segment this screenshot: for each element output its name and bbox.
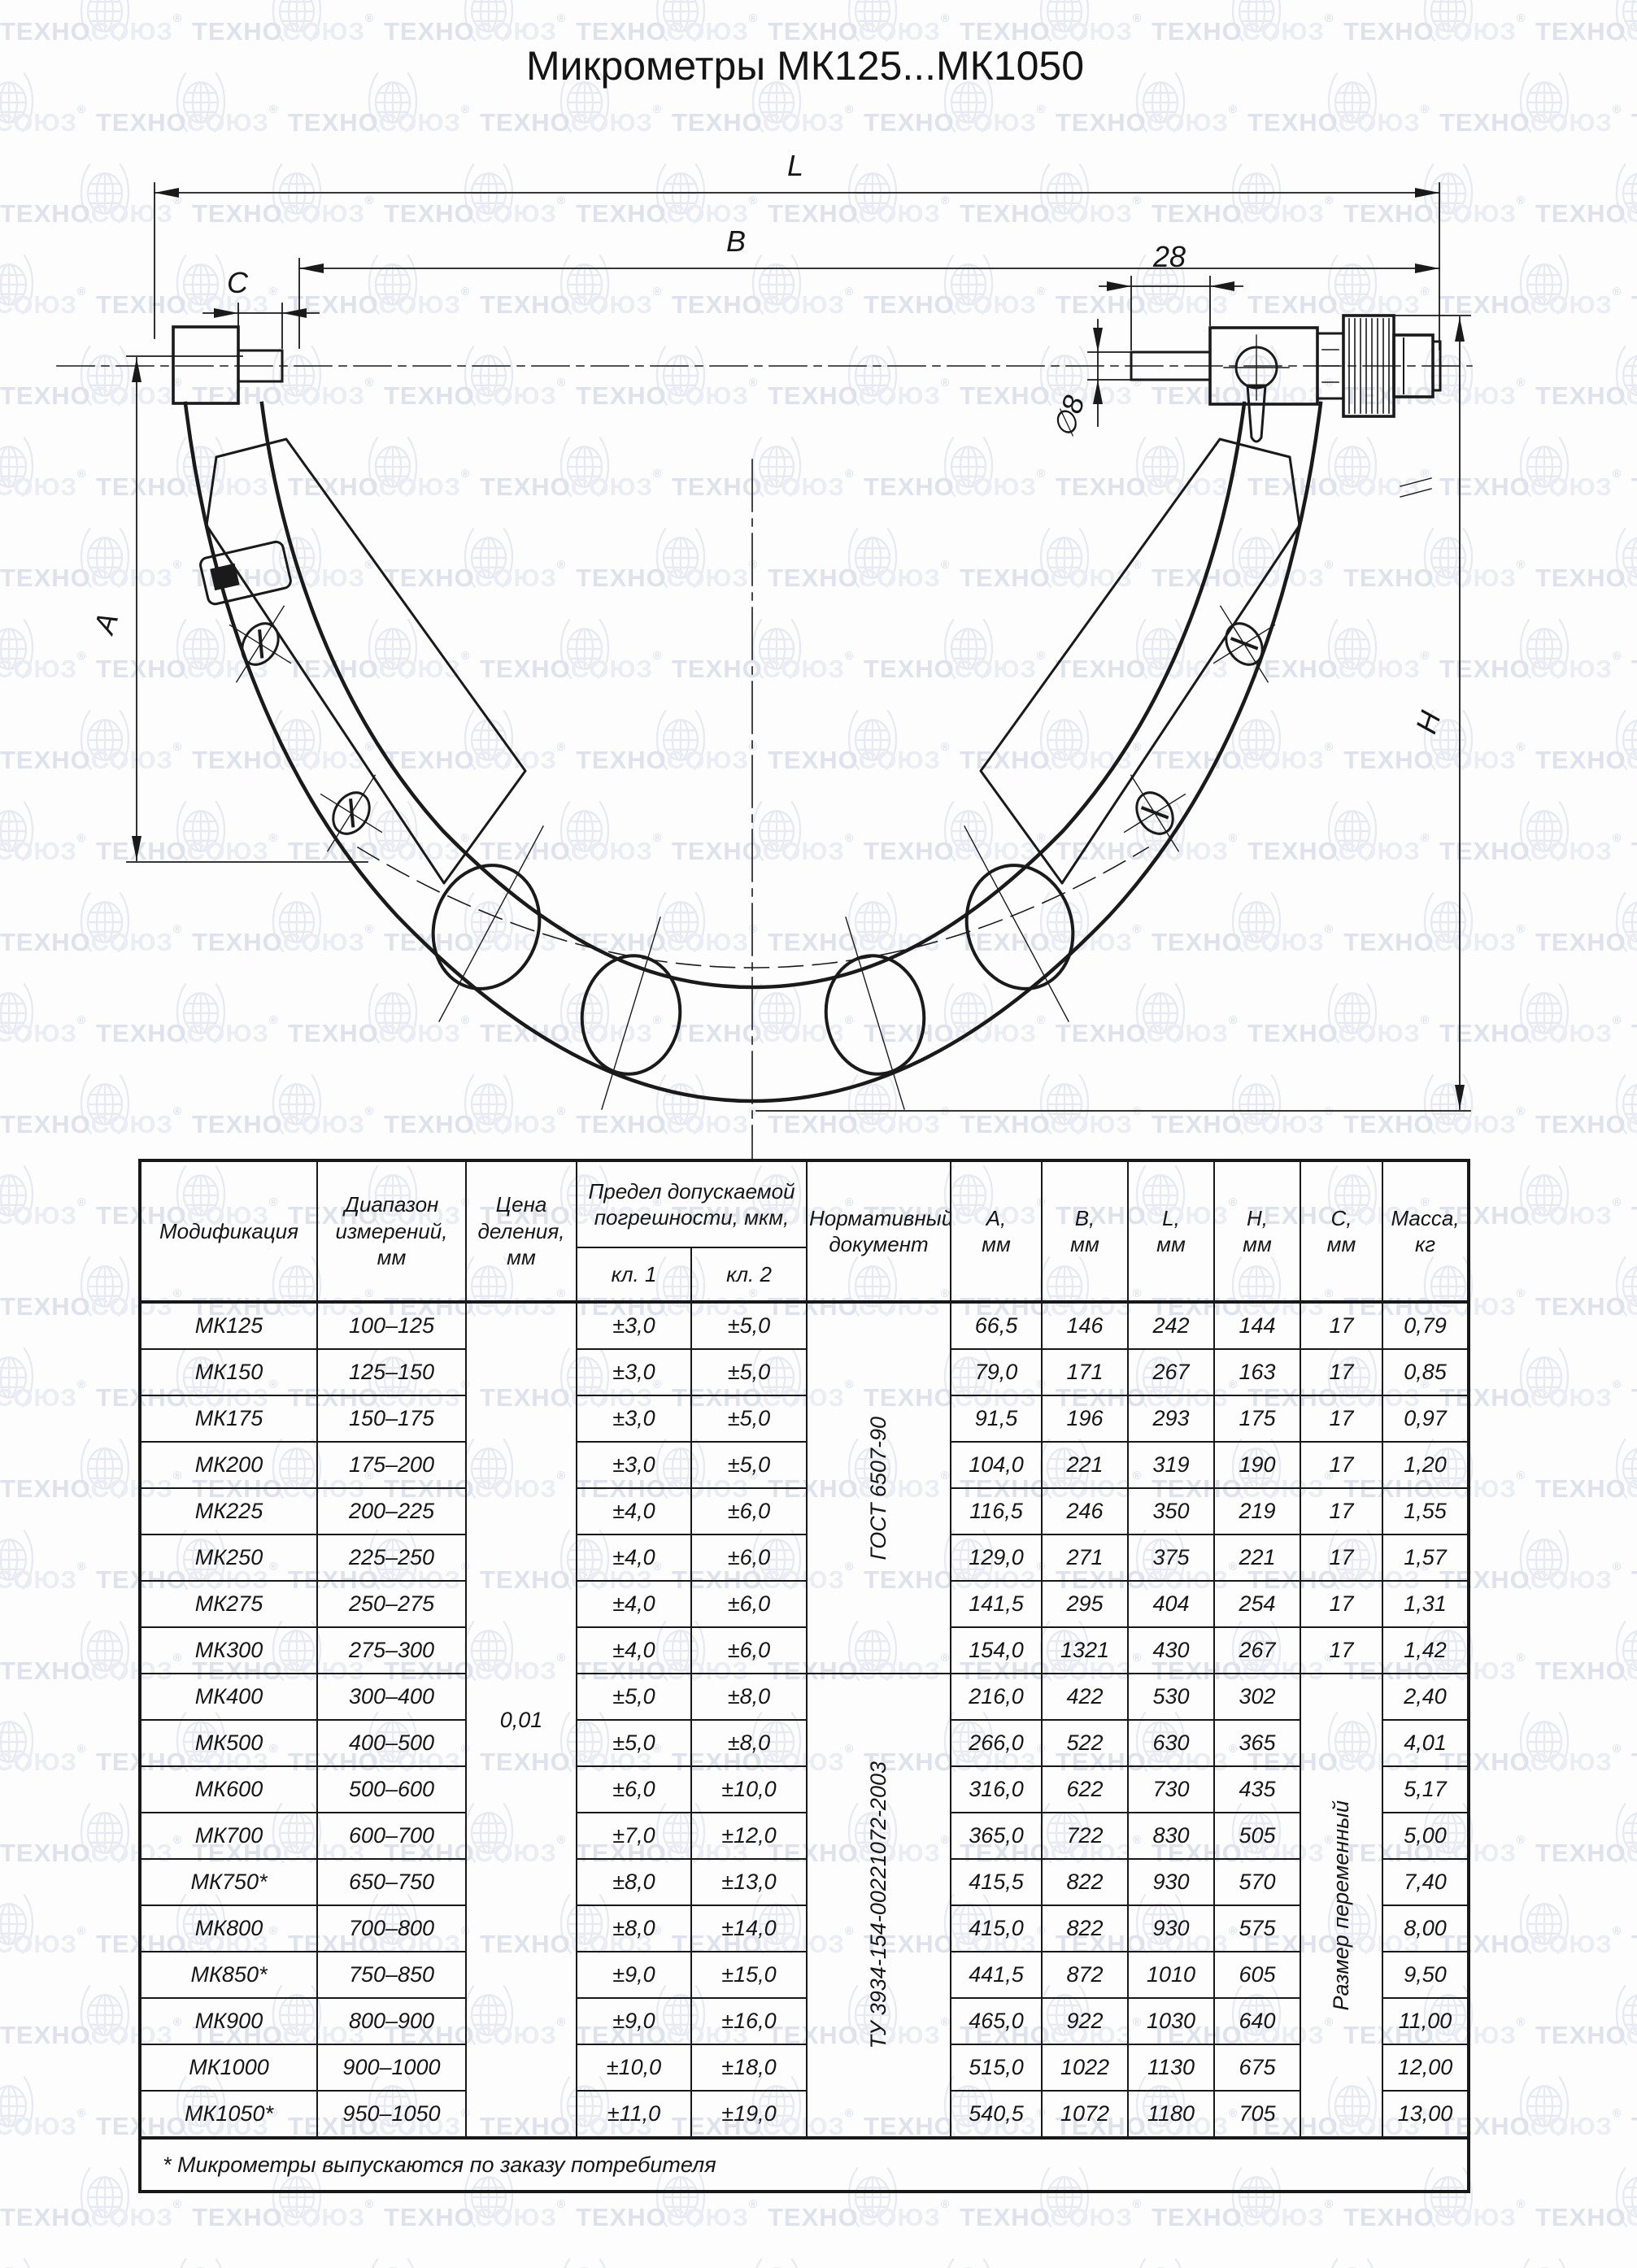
cell-mass: 11,00 — [1382, 1998, 1469, 2044]
cell-dim-a: 365,0 — [951, 1813, 1042, 1859]
cell-error-class2: ±10,0 — [691, 1766, 807, 1813]
col-letter-B: B, — [1075, 1206, 1095, 1230]
cell-dim-h: 221 — [1214, 1534, 1300, 1581]
cell-error-class2: ±12,0 — [691, 1813, 807, 1859]
cell-dim-b: 196 — [1042, 1395, 1128, 1442]
cell-dim-c: 17 — [1300, 1442, 1382, 1488]
cell-error-class2: ±6,0 — [691, 1488, 807, 1534]
col-header-modification: Модификация — [140, 1160, 317, 1302]
cell-range: 250–275 — [317, 1581, 466, 1627]
cell-mass: 1,42 — [1382, 1627, 1469, 1674]
cell-dim-b: 722 — [1042, 1813, 1128, 1859]
cell-error-class2: ±5,0 — [691, 1349, 807, 1395]
dim-label-L: L — [787, 149, 803, 182]
cell-dim-c: 17 — [1300, 1302, 1382, 1349]
cell-dim-l: 630 — [1128, 1720, 1214, 1766]
cell-dim-h: 190 — [1214, 1442, 1300, 1488]
cell-dim-h: 267 — [1214, 1627, 1300, 1674]
cell-dim-a: 540,5 — [951, 2091, 1042, 2138]
cell-model: МК275 — [140, 1581, 317, 1627]
cell-mass: 1,20 — [1382, 1442, 1469, 1488]
cell-dim-l: 404 — [1128, 1581, 1214, 1627]
table-row: МК500400–500±5,0±8,0266,05226303654,01 — [140, 1720, 1469, 1766]
cell-dim-h: 640 — [1214, 1998, 1300, 2044]
table-row: МК250225–250±4,0±6,0129,0271375221171,57 — [140, 1534, 1469, 1581]
anvil — [173, 327, 282, 403]
col-header-A: A, мм — [951, 1160, 1042, 1302]
cell-error-class2: ±6,0 — [691, 1627, 807, 1674]
cell-model: МК200 — [140, 1442, 317, 1488]
cell-dim-h: 570 — [1214, 1859, 1300, 1905]
cell-document-tu-text: ТУ 3934-154-00221072-2003 — [866, 1761, 891, 2049]
col-header-class1: кл. 1 — [577, 1247, 691, 1302]
cell-mass: 0,97 — [1382, 1395, 1469, 1442]
cell-dim-l: 1130 — [1128, 2044, 1214, 2091]
col-unit-L: мм — [1130, 1231, 1212, 1258]
col-header-mass: Масса, кг — [1382, 1160, 1469, 1302]
cell-range: 500–600 — [317, 1766, 466, 1813]
cell-dim-a: 266,0 — [951, 1720, 1042, 1766]
col-unit-A: мм — [953, 1231, 1039, 1258]
cell-dim-c: 17 — [1300, 1581, 1382, 1627]
cell-mass: 0,85 — [1382, 1349, 1469, 1395]
cell-error-class1: ±4,0 — [577, 1581, 691, 1627]
cell-range: 800–900 — [317, 1998, 466, 2044]
dim-C: C — [203, 266, 319, 348]
cell-error-class1: ±11,0 — [577, 2091, 691, 2138]
cell-dim-c: 17 — [1300, 1349, 1382, 1395]
cell-dim-h: 175 — [1214, 1395, 1300, 1442]
cell-dim-a: 141,5 — [951, 1581, 1042, 1627]
cell-dim-l: 830 — [1128, 1813, 1214, 1859]
cell-model: МК600 — [140, 1766, 317, 1813]
cell-range: 900–1000 — [317, 2044, 466, 2091]
col-letter-mass: Масса, — [1391, 1206, 1459, 1230]
cell-error-class1: ±8,0 — [577, 1905, 691, 1952]
cell-mass: 9,50 — [1382, 1952, 1469, 1998]
dim-H: H — [756, 316, 1470, 1111]
col-header-L: L, мм — [1128, 1160, 1214, 1302]
cell-dim-c-variable-text: Размер переменный — [1329, 1800, 1354, 2010]
cell-dim-l: 319 — [1128, 1442, 1214, 1488]
frame-groove-outlines — [207, 439, 1300, 883]
cell-error-class2: ±6,0 — [691, 1581, 807, 1627]
cell-error-class2: ±5,0 — [691, 1302, 807, 1349]
cell-range: 950–1050 — [317, 2091, 466, 2138]
cell-error-class2: ±18,0 — [691, 2044, 807, 2091]
cell-range: 150–175 — [317, 1395, 466, 1442]
cell-dim-l: 530 — [1128, 1674, 1214, 1720]
cell-mass: 5,17 — [1382, 1766, 1469, 1813]
cell-dim-l: 430 — [1128, 1627, 1214, 1674]
dim-label-C: C — [227, 266, 249, 299]
col-unit-C: мм — [1303, 1231, 1380, 1258]
col-header-class2: кл. 2 — [691, 1247, 807, 1302]
dim-label-28: 28 — [1152, 240, 1186, 273]
spec-table: Модификация Диапазон измерений, мм Цена … — [138, 1159, 1470, 2193]
table-row: МК700600–700±7,0±12,0365,07228305055,00 — [140, 1813, 1469, 1859]
col-header-division: Цена деления, мм — [466, 1160, 577, 1302]
col-unit-B: мм — [1044, 1231, 1125, 1258]
cell-model: МК1050* — [140, 2091, 317, 2138]
cell-dim-a: 441,5 — [951, 1952, 1042, 1998]
cell-error-class2: ±16,0 — [691, 1998, 807, 2044]
cell-dim-b: 271 — [1042, 1534, 1128, 1581]
cell-dim-h: 705 — [1214, 2091, 1300, 2138]
cell-dim-b: 922 — [1042, 1998, 1128, 2044]
cell-dim-a: 216,0 — [951, 1674, 1042, 1720]
cell-dim-h: 605 — [1214, 1952, 1300, 1998]
dim-dia8: ∅8 — [1047, 320, 1135, 442]
cell-dim-l: 375 — [1128, 1534, 1214, 1581]
cell-error-class1: ±7,0 — [577, 1813, 691, 1859]
cell-range: 100–125 — [317, 1302, 466, 1349]
cell-dim-b: 1321 — [1042, 1627, 1128, 1674]
cell-error-class1: ±4,0 — [577, 1627, 691, 1674]
cell-range: 225–250 — [317, 1534, 466, 1581]
cell-document-tu: ТУ 3934-154-00221072-2003 — [807, 1674, 951, 2138]
cell-dim-a: 129,0 — [951, 1534, 1042, 1581]
cell-mass: 2,40 — [1382, 1674, 1469, 1720]
cell-dim-h: 144 — [1214, 1302, 1300, 1349]
cell-dim-b: 295 — [1042, 1581, 1128, 1627]
cell-error-class1: ±3,0 — [577, 1302, 691, 1349]
cell-range: 275–300 — [317, 1627, 466, 1674]
table-row: МК1050*950–1050±11,0±19,0540,51072118070… — [140, 2091, 1469, 2138]
cell-error-class1: ±9,0 — [577, 1952, 691, 1998]
col-header-B: B, мм — [1042, 1160, 1128, 1302]
dim-B: B — [299, 224, 1439, 348]
dim-label-H: H — [1409, 706, 1448, 737]
table-row: МК800700–800±8,0±14,0415,08229305758,00 — [140, 1905, 1469, 1952]
cell-error-class2: ±19,0 — [691, 2091, 807, 2138]
table-row: МК225200–225±4,0±6,0116,5246350219171,55 — [140, 1488, 1469, 1534]
table-row: МК400300–400±5,0±8,0ТУ 3934-154-00221072… — [140, 1674, 1469, 1720]
cell-dim-l: 1010 — [1128, 1952, 1214, 1998]
cell-dim-b: 1022 — [1042, 2044, 1128, 2091]
cell-mass: 1,31 — [1382, 1581, 1469, 1627]
cell-dim-b: 822 — [1042, 1905, 1128, 1952]
dim-28: 28 — [1099, 240, 1243, 350]
col-letter-H: H, — [1247, 1206, 1268, 1230]
cell-error-class1: ±5,0 — [577, 1674, 691, 1720]
cell-dim-a: 316,0 — [951, 1766, 1042, 1813]
cell-model: МК150 — [140, 1349, 317, 1395]
cell-dim-h: 575 — [1214, 1905, 1300, 1952]
cell-error-class2: ±5,0 — [691, 1395, 807, 1442]
cell-error-class2: ±13,0 — [691, 1859, 807, 1905]
cell-model: МК175 — [140, 1395, 317, 1442]
cell-dim-h: 675 — [1214, 2044, 1300, 2091]
cell-division-value: 0,01 — [466, 1302, 577, 2138]
cell-model: МК750* — [140, 1859, 317, 1905]
table-row: МК850*750–850±9,0±15,0441,587210106059,5… — [140, 1952, 1469, 1998]
cell-mass: 4,01 — [1382, 1720, 1469, 1766]
cell-dim-b: 872 — [1042, 1952, 1128, 1998]
cell-error-class2: ±5,0 — [691, 1442, 807, 1488]
cell-error-class1: ±3,0 — [577, 1395, 691, 1442]
cell-model: МК400 — [140, 1674, 317, 1720]
cell-dim-l: 930 — [1128, 1859, 1214, 1905]
cell-dim-a: 415,5 — [951, 1859, 1042, 1905]
cell-error-class1: ±10,0 — [577, 2044, 691, 2091]
cell-dim-b: 171 — [1042, 1349, 1128, 1395]
cell-model: МК500 — [140, 1720, 317, 1766]
cell-mass: 8,00 — [1382, 1905, 1469, 1952]
cell-dim-l: 242 — [1128, 1302, 1214, 1349]
cell-dim-b: 522 — [1042, 1720, 1128, 1766]
cell-range: 650–750 — [317, 1859, 466, 1905]
frame-holes — [358, 826, 1148, 1109]
cell-dim-c: 17 — [1300, 1627, 1382, 1674]
dim-label-dia8: ∅8 — [1047, 391, 1091, 442]
cell-mass: 1,57 — [1382, 1534, 1469, 1581]
cell-dim-c: 17 — [1300, 1395, 1382, 1442]
cell-document-gost: ГОСТ 6507-90 — [807, 1302, 951, 1674]
col-unit-mass: кг — [1385, 1231, 1465, 1258]
col-header-document: Нормативный документ — [807, 1160, 951, 1302]
table-row: МК275250–275±4,0±6,0141,5295404254171,31 — [140, 1581, 1469, 1627]
cell-dim-a: 79,0 — [951, 1349, 1042, 1395]
cell-dim-b: 1072 — [1042, 2091, 1128, 2138]
cell-dim-h: 302 — [1214, 1674, 1300, 1720]
dim-label-A: A — [86, 608, 124, 638]
cell-range: 400–500 — [317, 1720, 466, 1766]
col-letter-L: L, — [1162, 1206, 1180, 1230]
cell-error-class2: ±8,0 — [691, 1720, 807, 1766]
cell-dim-a: 515,0 — [951, 2044, 1042, 2091]
cell-model: МК1000 — [140, 2044, 317, 2091]
table-row: МК600500–600±6,0±10,0316,06227304355,17 — [140, 1766, 1469, 1813]
cell-model: МК250 — [140, 1534, 317, 1581]
cell-dim-l: 293 — [1128, 1395, 1214, 1442]
center-lines — [57, 366, 1472, 1161]
cell-dim-a: 465,0 — [951, 1998, 1042, 2044]
col-header-C: C, мм — [1300, 1160, 1382, 1302]
cell-dim-c: 17 — [1300, 1534, 1382, 1581]
cell-range: 200–225 — [317, 1488, 466, 1534]
cell-error-class2: ±8,0 — [691, 1674, 807, 1720]
cell-dim-b: 246 — [1042, 1488, 1128, 1534]
cell-model: МК300 — [140, 1627, 317, 1674]
cell-error-class1: ±9,0 — [577, 1998, 691, 2044]
table-row: МК750*650–750±8,0±13,0415,58229305707,40 — [140, 1859, 1469, 1905]
table-footnote: * Микрометры выпускаются по заказу потре… — [140, 2138, 1469, 2192]
cell-dim-l: 1180 — [1128, 2091, 1214, 2138]
cell-model: МК900 — [140, 1998, 317, 2044]
micrometer-technical-drawing: L B C 28 — [0, 0, 1637, 1163]
cell-dim-c: 17 — [1300, 1488, 1382, 1534]
cell-mass: 13,00 — [1382, 2091, 1469, 2138]
cell-dim-l: 930 — [1128, 1905, 1214, 1952]
col-header-range: Диапазон измерений, мм — [317, 1160, 466, 1302]
cell-range: 175–200 — [317, 1442, 466, 1488]
cell-error-class1: ±6,0 — [577, 1766, 691, 1813]
cell-model: МК700 — [140, 1813, 317, 1859]
cell-range: 300–400 — [317, 1674, 466, 1720]
cell-dim-l: 267 — [1128, 1349, 1214, 1395]
cell-model: МК800 — [140, 1905, 317, 1952]
col-letter-A: A, — [986, 1206, 1007, 1230]
cell-dim-l: 1030 — [1128, 1998, 1214, 2044]
table-row: МК150125–150±3,0±5,079,0171267163170,85 — [140, 1349, 1469, 1395]
cell-error-class2: ±14,0 — [691, 1905, 807, 1952]
table-row: МК200175–200±3,0±5,0104,0221319190171,20 — [140, 1442, 1469, 1488]
cell-range: 750–850 — [317, 1952, 466, 1998]
cell-range: 700–800 — [317, 1905, 466, 1952]
cell-dim-a: 104,0 — [951, 1442, 1042, 1488]
col-header-error-group: Предел допускаемой погрешности, мкм, — [577, 1160, 807, 1247]
cell-dim-h: 505 — [1214, 1813, 1300, 1859]
col-letter-C: C, — [1331, 1206, 1352, 1230]
cell-dim-c-variable: Размер переменный — [1300, 1674, 1382, 2138]
cell-range: 125–150 — [317, 1349, 466, 1395]
cell-dim-b: 146 — [1042, 1302, 1128, 1349]
dim-L: L — [155, 149, 1439, 350]
cell-model: МК225 — [140, 1488, 317, 1534]
cell-model: МК850* — [140, 1952, 317, 1998]
cell-dim-b: 622 — [1042, 1766, 1128, 1813]
cell-dim-a: 116,5 — [951, 1488, 1042, 1534]
cell-mass: 7,40 — [1382, 1859, 1469, 1905]
micrometer-head — [1131, 316, 1440, 442]
cell-dim-b: 221 — [1042, 1442, 1128, 1488]
col-header-H: H, мм — [1214, 1160, 1300, 1302]
cell-dim-a: 91,5 — [951, 1395, 1042, 1442]
dim-label-B: B — [726, 224, 746, 258]
cell-dim-b: 822 — [1042, 1859, 1128, 1905]
cell-error-class2: ±15,0 — [691, 1952, 807, 1998]
cell-error-class1: ±4,0 — [577, 1488, 691, 1534]
cell-error-class1: ±3,0 — [577, 1442, 691, 1488]
cell-dim-b: 422 — [1042, 1674, 1128, 1720]
table-row: МК175150–175±3,0±5,091,5196293175170,97 — [140, 1395, 1469, 1442]
cell-dim-h: 435 — [1214, 1766, 1300, 1813]
cell-dim-l: 730 — [1128, 1766, 1214, 1813]
cell-error-class1: ±3,0 — [577, 1349, 691, 1395]
cell-document-gost-text: ГОСТ 6507-90 — [866, 1417, 891, 1560]
cell-mass: 0,79 — [1382, 1302, 1469, 1349]
cell-dim-h: 254 — [1214, 1581, 1300, 1627]
col-unit-H: мм — [1217, 1231, 1298, 1258]
table-row: МК125100–1250,01±3,0±5,0ГОСТ 6507-9066,5… — [140, 1302, 1469, 1349]
cell-dim-a: 66,5 — [951, 1302, 1042, 1349]
cell-mass: 5,00 — [1382, 1813, 1469, 1859]
table-row: МК900800–900±9,0±16,0465,0922103064011,0… — [140, 1998, 1469, 2044]
cell-error-class1: ±4,0 — [577, 1534, 691, 1581]
table-row: МК300275–300±4,0±6,0154,01321430267171,4… — [140, 1627, 1469, 1674]
cell-dim-l: 350 — [1128, 1488, 1214, 1534]
cell-mass: 1,55 — [1382, 1488, 1469, 1534]
cell-error-class1: ±5,0 — [577, 1720, 691, 1766]
cell-dim-h: 365 — [1214, 1720, 1300, 1766]
cell-error-class1: ±8,0 — [577, 1859, 691, 1905]
cell-dim-h: 219 — [1214, 1488, 1300, 1534]
table-row: МК1000900–1000±10,0±18,0515,010221130675… — [140, 2044, 1469, 2091]
cell-mass: 12,00 — [1382, 2044, 1469, 2091]
cell-range: 600–700 — [317, 1813, 466, 1859]
cell-dim-h: 163 — [1214, 1349, 1300, 1395]
cell-model: МК125 — [140, 1302, 317, 1349]
cell-dim-a: 415,0 — [951, 1905, 1042, 1952]
cell-dim-a: 154,0 — [951, 1627, 1042, 1674]
cell-error-class2: ±6,0 — [691, 1534, 807, 1581]
